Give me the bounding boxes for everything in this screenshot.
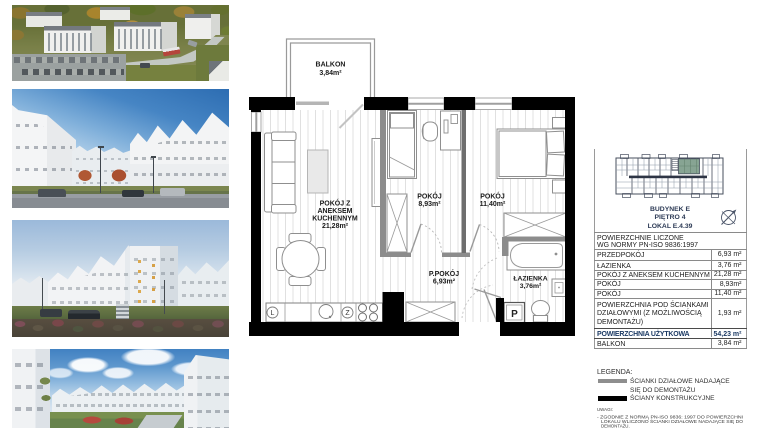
svg-text:P.POKÓJ: P.POKÓJ: [429, 269, 459, 278]
svg-text:8,93m²: 8,93m²: [418, 201, 441, 208]
svg-text:11,40m²: 11,40m²: [480, 201, 506, 208]
svg-text:POKÓJ: POKÓJ: [417, 192, 442, 201]
svg-text:BALKON: BALKON: [316, 62, 346, 69]
svg-text:ŁAZIENKA: ŁAZIENKA: [513, 276, 547, 283]
svg-text:Z: Z: [345, 310, 350, 317]
svg-text:DEMONTAŻU.: DEMONTAŻU.: [601, 423, 630, 428]
svg-text:UWAGI:: UWAGI:: [597, 407, 613, 412]
svg-text:6,93m²: 6,93m²: [433, 279, 456, 286]
svg-text:L: L: [271, 310, 275, 317]
svg-text:ANEKSEM: ANEKSEM: [317, 208, 352, 215]
svg-text:3,84m²: 3,84m²: [319, 70, 342, 77]
svg-text:POKÓJ Z: POKÓJ Z: [320, 199, 351, 208]
svg-text:P: P: [511, 309, 518, 320]
svg-text:POKÓJ: POKÓJ: [480, 192, 505, 201]
svg-text:21,28m²: 21,28m²: [322, 223, 349, 230]
svg-text:KUCHENNYM: KUCHENNYM: [312, 216, 358, 223]
svg-text:3,76m²: 3,76m²: [520, 283, 542, 290]
